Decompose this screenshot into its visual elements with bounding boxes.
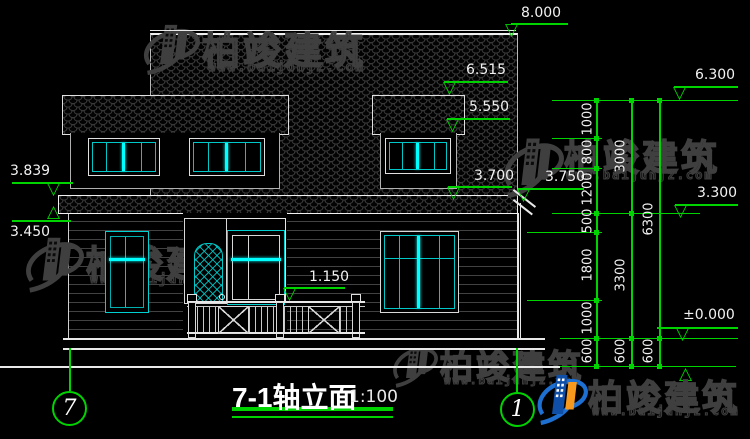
railing-balusters xyxy=(284,307,307,332)
dim-label: 600 xyxy=(643,339,656,364)
right-wall-inner-line xyxy=(520,203,521,338)
axis-line-1 xyxy=(516,348,518,392)
dim-label: 1800 xyxy=(582,248,595,281)
dim-chain-outer xyxy=(659,100,661,366)
railing-x-panel xyxy=(218,306,249,334)
level-triangle-icon: ▽ xyxy=(674,203,687,220)
level-triangle-icon: △ xyxy=(47,204,60,221)
dim-label: 3300 xyxy=(615,258,628,291)
level-triangle-icon: ▽ xyxy=(447,185,460,202)
elevation-drawing-canvas: 7 1 8.000 ▽ 6.515 ▽ 5.550 ▽ 3.700 ▽ 3.75… xyxy=(0,0,750,439)
watermark-brand: 柏竣建筑 xyxy=(588,370,740,421)
railing-balusters xyxy=(197,307,218,332)
left-dormer-roof xyxy=(62,95,289,135)
railing-balusters xyxy=(249,307,274,332)
axis-bubble-7-label: 7 xyxy=(63,396,77,421)
railing-balusters xyxy=(340,307,351,332)
ground-line xyxy=(0,366,560,368)
level-ridge: 8.000 xyxy=(521,6,561,21)
level-triangle-icon: ▽ xyxy=(47,181,60,198)
dormer-window-left-1 xyxy=(88,138,160,176)
level-right-zero: ±0.000 xyxy=(683,308,735,323)
dim-label: 1200 xyxy=(582,172,595,205)
level-left-eave-bottom: 3.450 xyxy=(10,225,50,240)
dormer-window-right xyxy=(385,138,451,174)
watermark-url: www.baijunjz.com xyxy=(444,374,582,387)
level-dormer-top: 6.515 xyxy=(466,63,506,78)
axis-bubble-1-label: 1 xyxy=(511,397,525,422)
level-triangle-icon: ▽ xyxy=(283,286,296,303)
level-right-eave: 3.700 xyxy=(474,169,514,184)
level-triangle-icon: ▽ xyxy=(676,326,689,343)
level-triangle-icon: ▽ xyxy=(673,85,686,102)
ground-level-triangle-icon: △ xyxy=(679,366,692,383)
watermark-url: www.baijunjz.com xyxy=(592,404,740,418)
dim-label: 600 xyxy=(582,339,595,364)
level-left-eave-top: 3.839 xyxy=(10,164,50,179)
dim-chain-middle xyxy=(631,100,633,366)
dim-label: 1000 xyxy=(582,301,595,334)
axis-line-7 xyxy=(69,348,71,391)
dim-label: 1000 xyxy=(582,102,595,135)
level-right-top: 6.300 xyxy=(695,68,735,83)
window-first-floor-right xyxy=(380,231,459,313)
axis-bubble-7: 7 xyxy=(52,391,87,426)
dim-label: 6300 xyxy=(643,202,656,235)
level-triangle-icon: ▽ xyxy=(443,80,456,97)
drawing-title: 7-1轴立面 xyxy=(232,376,356,416)
railing-x-panel xyxy=(308,306,340,334)
terrace-railing xyxy=(187,294,365,338)
title-underline-thin xyxy=(232,416,393,418)
level-right-eave-upper: 3.750 xyxy=(545,170,585,185)
floor-slab xyxy=(63,338,545,350)
axis-bubble-1: 1 xyxy=(500,392,535,427)
door-knob xyxy=(219,294,225,300)
dim-label: 500 xyxy=(582,209,595,234)
window-first-floor-left xyxy=(105,231,149,313)
level-triangle-icon: ▽ xyxy=(446,117,459,134)
level-triangle-icon: ▽ xyxy=(517,187,530,204)
brand-logo-icon xyxy=(534,366,588,430)
dim-label: 800 xyxy=(582,140,595,165)
level-right-mid: 3.300 xyxy=(697,186,737,201)
level-railing-top: 1.150 xyxy=(309,270,349,285)
ridge-line xyxy=(150,30,516,31)
dim-label: 600 xyxy=(615,339,628,364)
drawing-scale: 1:100 xyxy=(349,387,398,407)
level-triangle-icon: ▽ xyxy=(505,22,518,39)
dim-label: 3000 xyxy=(615,139,628,172)
level-dormer-eave: 5.550 xyxy=(469,100,509,115)
dormer-window-left-2 xyxy=(189,138,265,176)
